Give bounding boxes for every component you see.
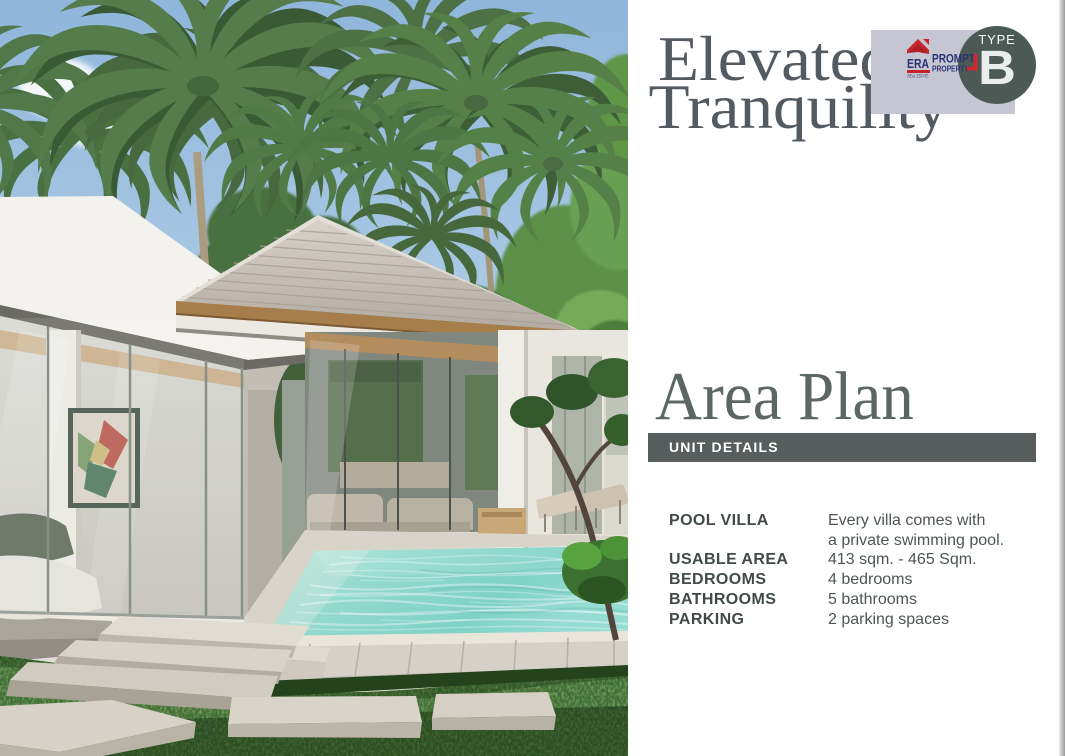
svg-text:PROMPT: PROMPT <box>932 52 976 66</box>
svg-text:PROPERTY: PROPERTY <box>932 65 970 74</box>
svg-text:ERA: ERA <box>907 56 929 71</box>
svg-text:REAL ESTATE: REAL ESTATE <box>908 74 929 79</box>
